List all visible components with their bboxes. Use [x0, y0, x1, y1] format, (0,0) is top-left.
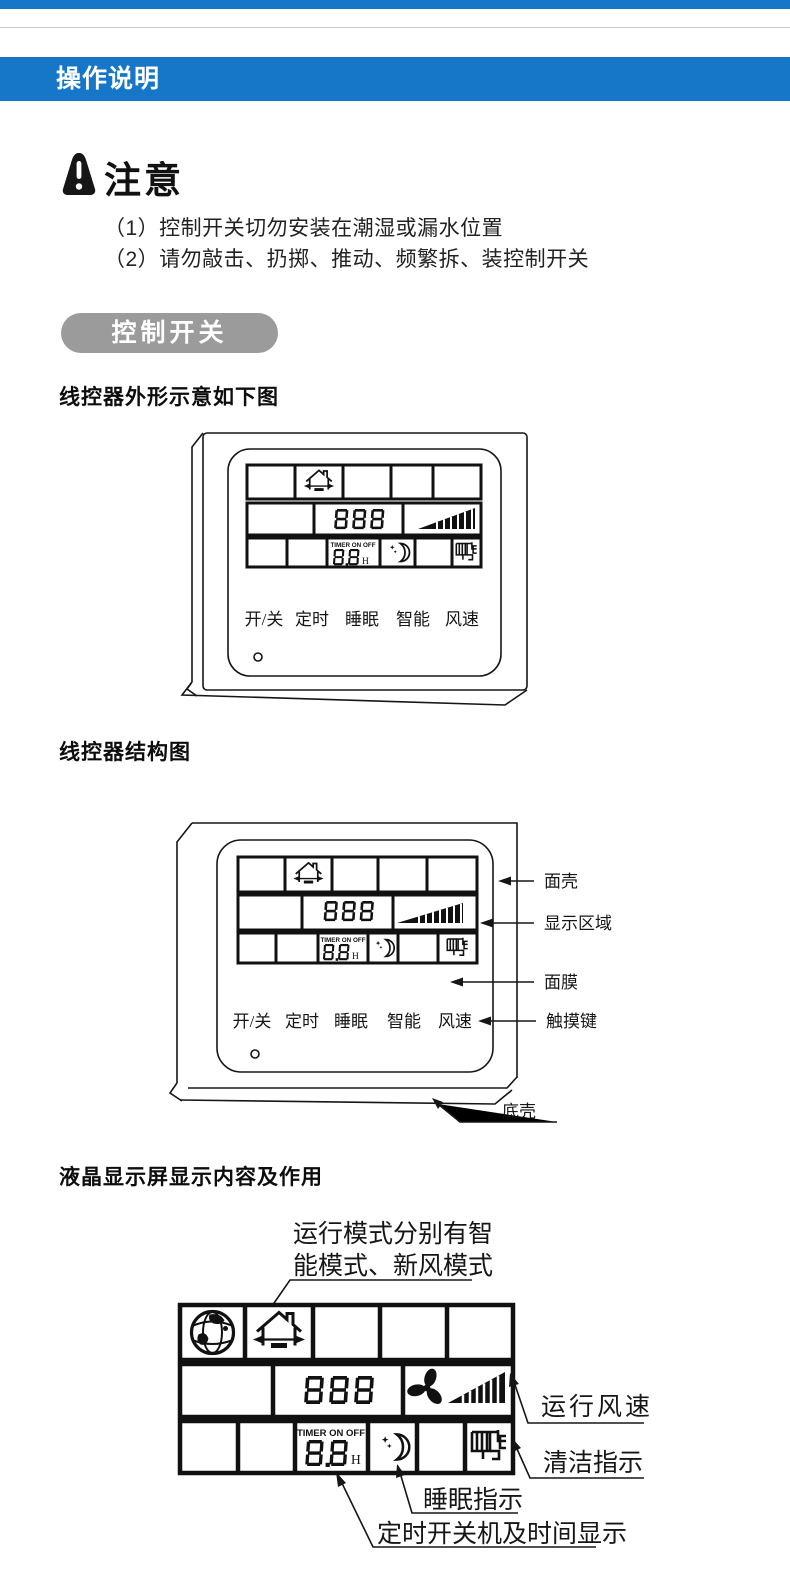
drawing-controller-outline: TIMER ON OFF H 开/关 定时 睡眠 智能 风速: [175, 425, 540, 710]
timer-on-off-label: TIMER ON OFF: [297, 1428, 365, 1439]
key-fan: 风速: [445, 610, 479, 629]
label-timer-display: 定时开关机及时间显示: [377, 1520, 627, 1548]
callout-labels: 面壳 显示区域 面膜 触摸键 底壳: [502, 872, 612, 1121]
notice-item-2: （2）请勿敲击、扔掷、推动、频繁拆、装控制开关: [104, 243, 589, 273]
heading-outline: 线控器外形示意如下图: [59, 381, 279, 411]
mode-note-line1: 运行模式分别有智: [293, 1220, 493, 1248]
top-divider: [0, 27, 790, 28]
heading-structure: 线控器结构图: [59, 736, 191, 766]
mode-leader-line: [272, 1280, 472, 1306]
timer-unit: H: [362, 557, 369, 567]
section-pill: 控制开关: [61, 313, 278, 353]
label-clean: 清洁指示: [543, 1449, 643, 1477]
label-membrane: 面膜: [544, 973, 578, 992]
indicator-hole: [251, 1050, 259, 1058]
timer-on-off-label: TIMER ON OFF: [320, 937, 365, 944]
key-power: 开/关: [233, 1012, 272, 1031]
mode-annotation: 运行模式分别有智 能模式、新风模式: [293, 1220, 493, 1280]
label-sleep: 睡眠指示: [423, 1486, 523, 1514]
warning-icon: [60, 152, 98, 196]
key-sleep: 睡眠: [345, 610, 379, 629]
timer-on-off-label: TIMER ON OFF: [330, 542, 375, 549]
indicator-hole: [254, 653, 262, 661]
heading-lcd: 液晶显示屏显示内容及作用: [59, 1161, 323, 1191]
label-bottom-shell: 底壳: [502, 1102, 536, 1121]
label-touch-keys: 触摸键: [546, 1012, 597, 1031]
key-sleep: 睡眠: [334, 1012, 368, 1031]
touch-key-labels: 开/关 定时 睡眠 智能 风速: [245, 610, 479, 629]
label-fan-speed: 运行风速: [541, 1393, 653, 1421]
key-smart: 智能: [387, 1012, 421, 1031]
key-timer: 定时: [295, 610, 329, 629]
label-display-area: 显示区域: [544, 914, 612, 933]
page-title: 操作说明: [56, 65, 160, 93]
notice-item-1: （1）控制开关切勿安装在潮湿或漏水位置: [104, 212, 503, 242]
touch-key-labels: 开/关 定时 睡眠 智能 风速: [233, 1012, 472, 1031]
drawing-lcd-display: 运行模式分别有智 能模式、新风模式 TIMER ON OFF H: [60, 1200, 760, 1584]
mode-note-line2: 能模式、新风模式: [293, 1252, 493, 1280]
top-strip: [0, 0, 790, 9]
section-header-bar: 操作说明: [0, 57, 790, 101]
key-smart: 智能: [396, 610, 430, 629]
label-face-shell: 面壳: [544, 872, 578, 891]
timer-unit: H: [351, 1452, 361, 1467]
key-timer: 定时: [285, 1012, 319, 1031]
drawing-controller-structure: TIMER ON OFF H 开/关 定时 睡眠 智能 风速 面壳 显示区域 面…: [160, 795, 640, 1130]
timer-unit: H: [352, 952, 359, 962]
notice-title: 注意: [104, 150, 184, 204]
key-fan: 风速: [438, 1012, 472, 1031]
key-power: 开/关: [245, 610, 284, 629]
